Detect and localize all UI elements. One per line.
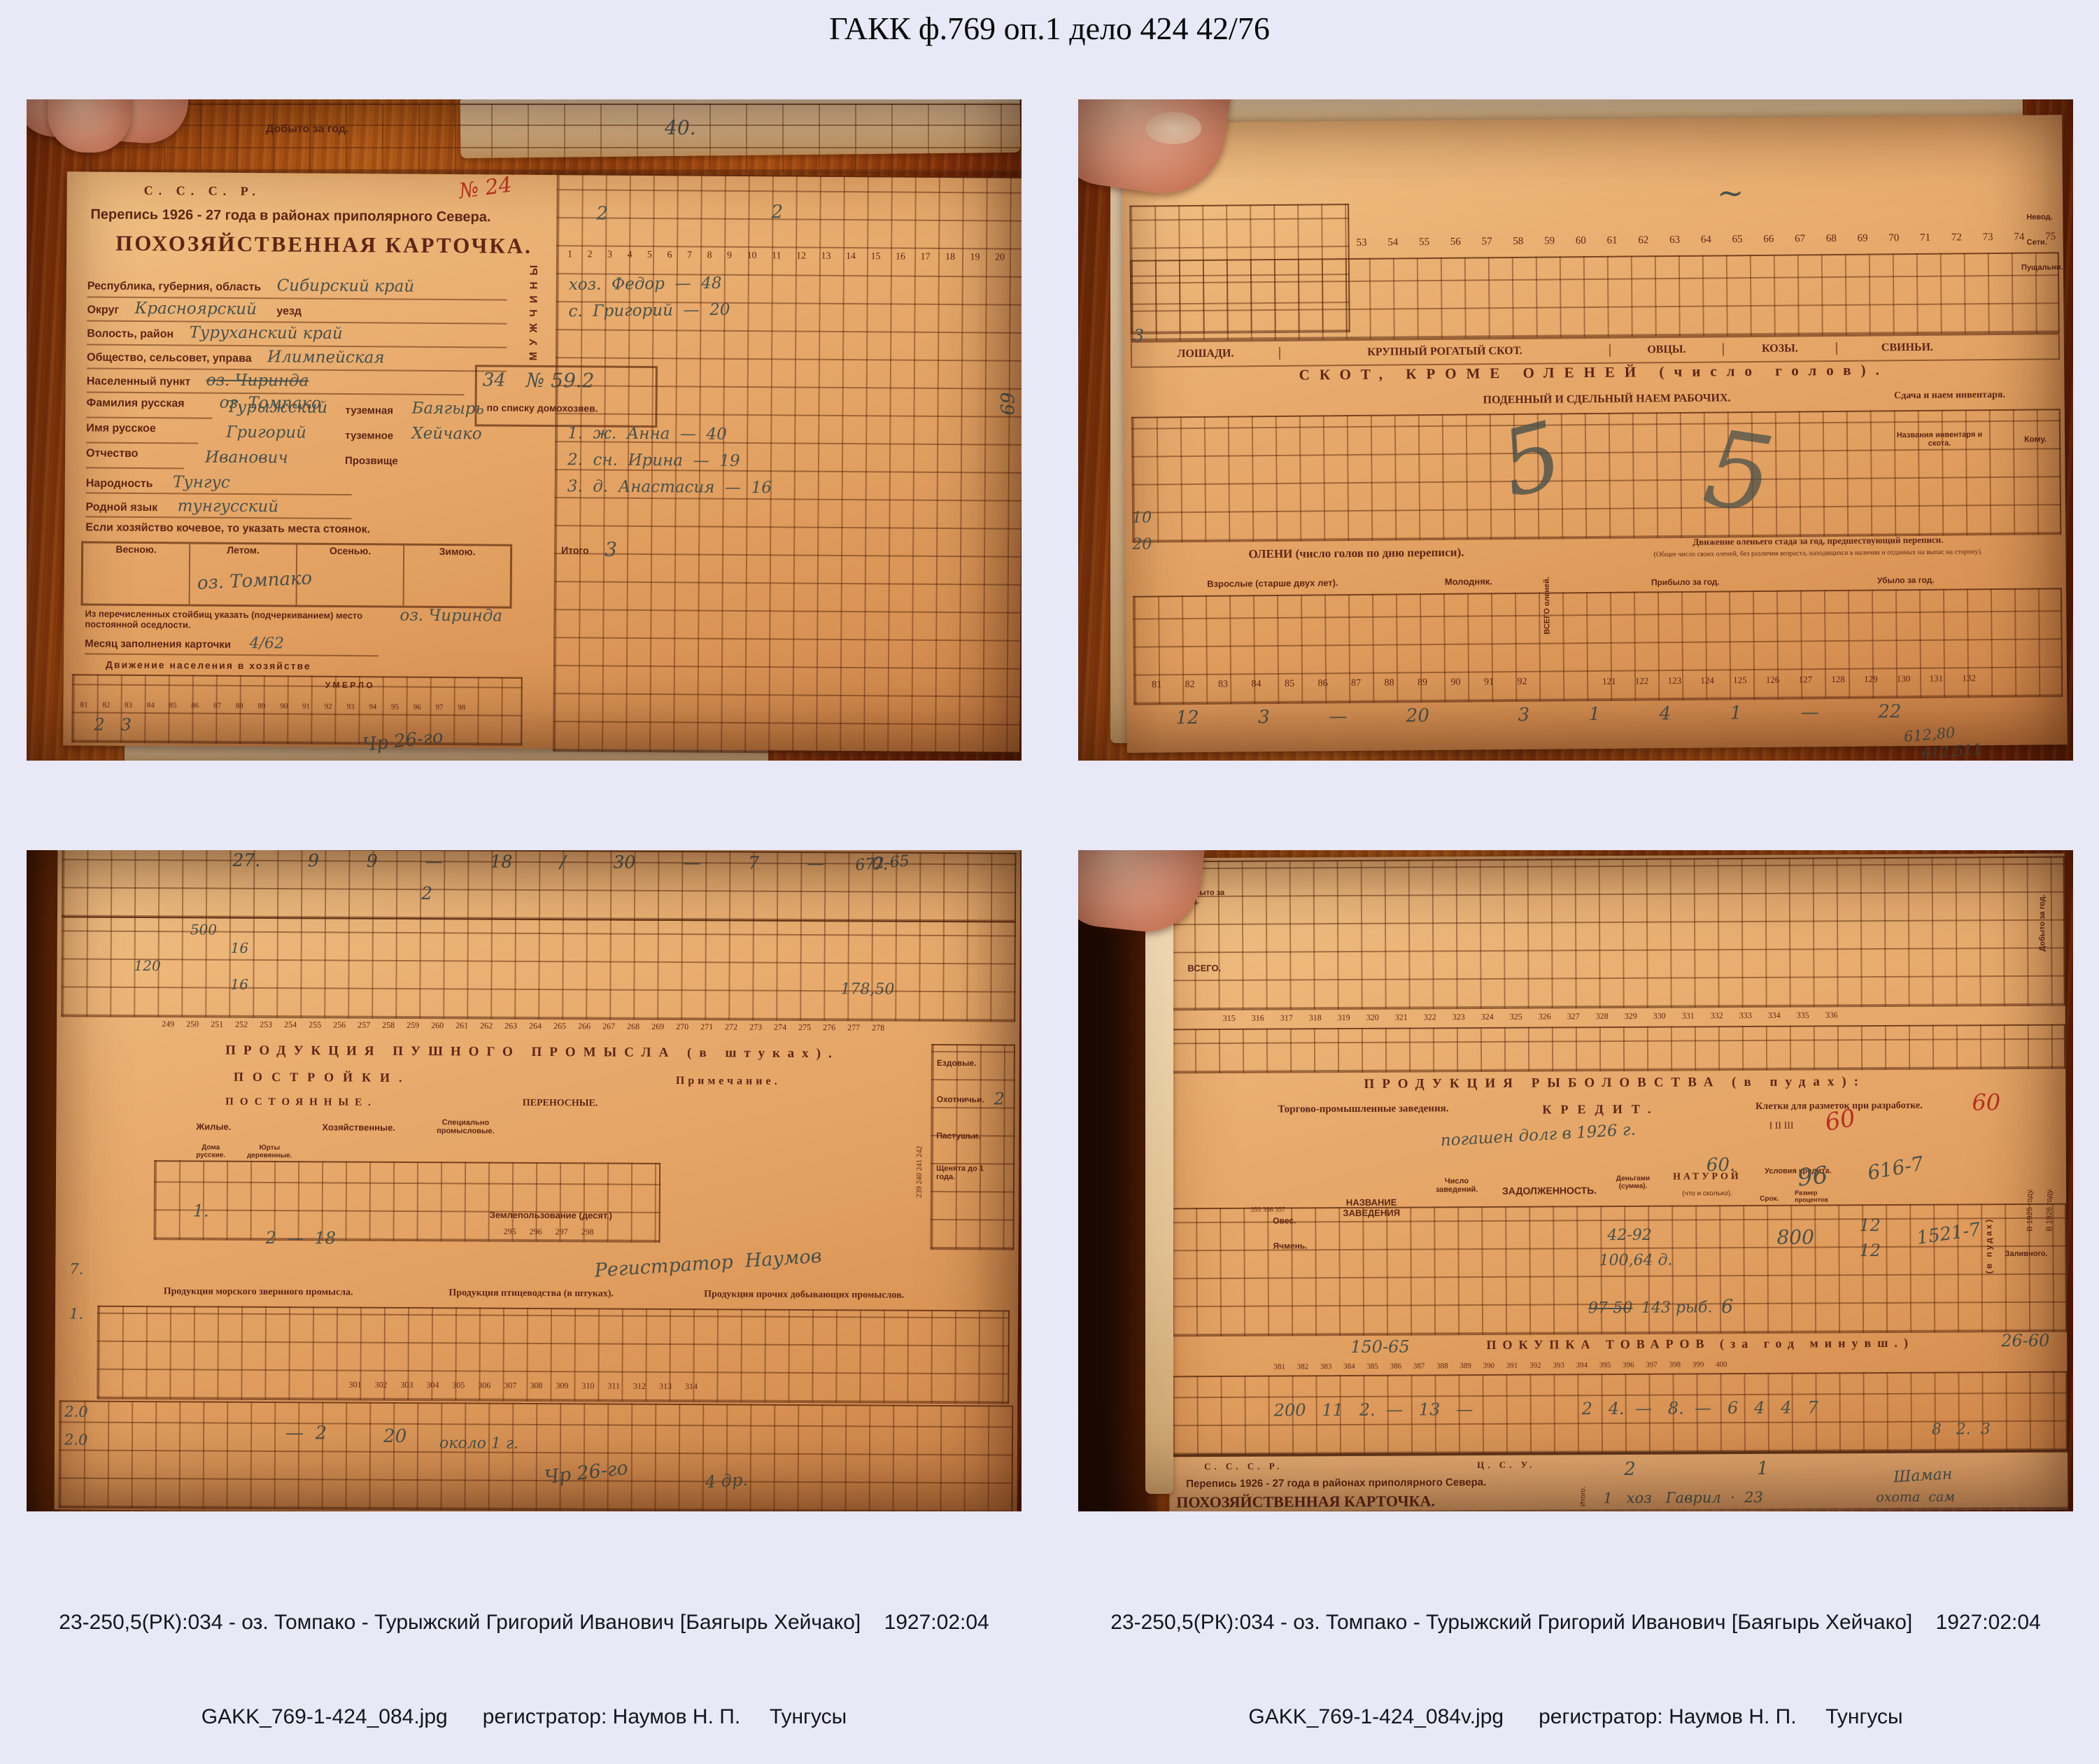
photo-083v[interactable]: ~ 53 54 55 56 57 58 59 60 61 62 63 64 65…: [1078, 99, 2073, 761]
handwritten-value: 2: [994, 1089, 1005, 1108]
total-label: Итого.: [1579, 1458, 1587, 1507]
handwritten-value: — 2: [285, 1423, 327, 1444]
column-header: Деньгами (сумма).: [1609, 1175, 1658, 1190]
column-numbers: 53 54 55 56 57 58 59 60 61 62 63 64 65 6…: [1357, 231, 2073, 249]
photo-083[interactable]: Добыто за год. 40. № 24 С. С. С. Р. Пере…: [27, 99, 1022, 761]
handwritten-value: 34: [483, 369, 506, 390]
column-numbers: 81 82 83 84 85 86 87 88 89 90 91 92 93 9…: [80, 700, 466, 712]
member-row: 1. ж. Анна — 40: [567, 424, 727, 444]
handwritten-value: 2: [1624, 1459, 1636, 1480]
handwritten-row: 2 4. — 8. — 6 4 4 7: [1582, 1397, 1818, 1418]
band-header: ПРОДУКЦИЯ ПУШНОГО ПРОМЫСЛА (в штуках).: [127, 1043, 938, 1062]
handwritten-value: оз. Чиринда: [206, 372, 309, 390]
handwritten-value: Иванович: [205, 449, 288, 467]
field-label: Округ: [87, 304, 119, 316]
doc-country: С. С. С. Р.: [144, 183, 261, 199]
fingernail: [1145, 112, 1201, 144]
column-header: Охотничьи.: [937, 1094, 984, 1104]
doc-csu: Ц. С. У.: [1477, 1460, 1535, 1471]
band-header: Торгово-промышленные заведения.: [1258, 1103, 1468, 1116]
field-label: туземная: [345, 404, 393, 416]
red-annotation: № 24: [458, 173, 514, 204]
handwritten-value: около 1 г.: [439, 1434, 518, 1453]
field-label: Народность: [86, 477, 153, 490]
handwritten-value: 2: [771, 202, 783, 223]
handwritten-value: Красноярский: [134, 299, 256, 318]
photo-084[interactable]: 27. 9 9 — 18 / 30 — 7 — 0. 2 672-65 178,…: [27, 850, 1022, 1511]
column-header: Пастушьи.: [936, 1131, 980, 1141]
handwritten-value: тунгусский: [178, 497, 279, 516]
handwritten-value: Баягырь: [411, 400, 484, 418]
field-label: уезд: [276, 305, 302, 317]
field-label: Фамилия русская: [87, 397, 185, 409]
band-header: Продукция морского звериного промысла.: [118, 1286, 398, 1299]
field-label: Невод.: [2026, 213, 2052, 221]
handwritten-value: 2.0: [64, 1431, 88, 1448]
band-header: СВИНЬИ.: [1837, 341, 1977, 355]
handwritten-value: Сибирский край: [277, 276, 415, 295]
handwritten-value: 616-7: [1866, 1152, 1925, 1185]
member-row: 3. д. Анастасия — 16: [567, 477, 772, 497]
column-header: Прибыло за год.: [1609, 577, 1762, 588]
handwritten-value: 1: [1757, 1458, 1769, 1479]
field-label: Отчество: [86, 447, 139, 460]
handwritten-value: 20: [1132, 536, 1152, 553]
column-header: Жилые.: [196, 1121, 231, 1131]
band-header: ПОСТРОЙКИ.: [141, 1069, 504, 1086]
band-header: КРУПНЫЙ РОГАТЫЙ СКОТ.: [1280, 344, 1611, 360]
handwritten-value: 10: [1132, 509, 1152, 527]
handwritten-value: оз. Чиринда: [400, 607, 502, 626]
handwritten-row: 1 хоз Гаврил · 23: [1603, 1489, 1763, 1507]
handwritten-value: Тунгус: [173, 473, 230, 492]
column-header: Юрты деревянные.: [243, 1144, 295, 1159]
column-subheader: (что и сколько).: [1662, 1190, 1753, 1198]
pencil-scribble: ~: [1717, 174, 1744, 211]
band-header: Сдача и наем инвентаря.: [1844, 389, 2054, 402]
movement-subtitle: У М Е Р Л О: [325, 680, 373, 690]
band-header: КРЕДИТ.: [1489, 1101, 1713, 1117]
column-numbers: 315 316 317 318 319 320 321 322 323 324 …: [1223, 1010, 1838, 1024]
band-header: КОЗЫ.: [1724, 342, 1837, 355]
band-header: ЛОШАДИ.: [1132, 347, 1280, 361]
red-annotation: 60: [1972, 1089, 2000, 1115]
photo-084v[interactable]: Добыто за год. ВСЕГО. Добыто за год. 315…: [1078, 850, 2073, 1511]
handwritten-value: Туруханский край: [189, 323, 342, 343]
field-label: Родной язык: [85, 501, 157, 514]
field-label: Добыто за год.: [266, 123, 348, 136]
band-header: ПРОДУКЦИЯ РЫБОЛОВСТВА (в пудах):: [1209, 1073, 2021, 1093]
band-header: Примечание.: [588, 1074, 868, 1088]
handwritten-row: 200 11 2. — 13 —: [1274, 1399, 1473, 1420]
red-annotation: 60: [1823, 1104, 1858, 1137]
photo-caption: 23-250,5(РК):034 - оз. Томпако - Турыжск…: [27, 1544, 1022, 1764]
next-card-edge: С. С. С. Р. Ц. С. У. Перепись 1926 - 27 …: [1169, 1450, 2068, 1511]
member-row: хоз. Федор — 48: [569, 274, 722, 294]
handwritten-value: 60.: [1706, 1155, 1736, 1176]
field-label: Пущальни.: [2021, 263, 2063, 272]
band-header: Продукция птицеводства (в штуках).: [412, 1287, 650, 1300]
column-numbers: 381 382 383 384 385 386 387 388 389 390 …: [1273, 1360, 1727, 1371]
movement-title: Движение населения в хозяйстве: [106, 659, 311, 672]
handwritten-note: погашен долг в 1926 г.: [1440, 1121, 1636, 1150]
pencil-scribble: 69: [996, 392, 1017, 415]
handwritten-value: 1.: [69, 1305, 83, 1322]
column-header: Летом.: [227, 544, 260, 556]
handwritten-value: 2.0: [64, 1403, 88, 1420]
handwritten-value: Григорий: [226, 423, 306, 442]
band-header: ПОКУПКА ТОВАРОВ (за год минувш.): [1434, 1335, 1966, 1353]
paper-pile-edge: [1145, 878, 1173, 1494]
caption-line2: GAKK_769-1-424_084.jpg регистратор: Наум…: [27, 1701, 1022, 1733]
band-header: ПОСТОЯННЫЕ.: [148, 1096, 455, 1109]
column-header: Молодняк.: [1420, 576, 1518, 587]
handwritten-value: Илимпейская: [267, 348, 385, 367]
handwritten-value: 2 — 18: [265, 1228, 335, 1248]
handwritten-value: 2: [421, 883, 432, 903]
handwritten-value: 20: [383, 1426, 407, 1447]
pencil-scribble: 4 др.: [705, 1469, 749, 1492]
handwritten-value: 26-60: [2001, 1331, 2049, 1350]
column-header: ЗАДОЛЖЕННОСТЬ.: [1502, 1185, 1597, 1197]
handwritten-row: 12 3 — 20 3 1 4 1 — 22: [1175, 701, 1901, 728]
column-header: Специально промысловые.: [427, 1118, 504, 1136]
caption-line1: 23-250,5(РК):034 - оз. Томпако - Турыжск…: [27, 1607, 1022, 1638]
field-label: Добыто за год.: [2038, 868, 2057, 952]
field-label: Землепользование (десят.): [490, 1210, 612, 1221]
field-label: Месяц заполнения карточки: [85, 637, 231, 650]
handwritten-row: 27. 9 9 — 18 / 30 — 7 — 0.: [232, 850, 888, 874]
field-label: Общество, сельсовет, управа: [87, 351, 252, 365]
band-header: ОЛЕНИ (число голов по дню переписи).: [1146, 544, 1566, 562]
handwritten-value: 2: [596, 204, 608, 225]
handwritten-value: 3: [605, 538, 617, 561]
field-label: Сети.: [2027, 238, 2047, 246]
photo-caption: 23-250,5(РК):034 - оз. Томпако - Турыжск…: [1078, 1544, 2073, 1764]
band-subtitle: (Общее число своих оленей, без различия …: [1587, 547, 2049, 559]
handwritten-value: 150-65: [1350, 1337, 1410, 1357]
page-title: ГАКК ф.769 оп.1 дело 424 42/76: [0, 10, 2099, 47]
doc-card-title: ПОХОЗЯЙСТВЕННАЯ КАРТОЧКА.: [1176, 1492, 1435, 1511]
doc-census-line: Перепись 1926 - 27 года в районах припол…: [90, 206, 490, 225]
handwritten-value: 1.: [193, 1201, 209, 1220]
column-header: Осенью.: [330, 545, 371, 556]
field-label: Республика, губерния, область: [87, 280, 262, 293]
column-subheader: Срок.: [1760, 1195, 1779, 1203]
registrar-signature: Регистратор Наумов: [594, 1246, 823, 1282]
column-numbers: 249 250 251 252 253 254 255 256 257 258 …: [162, 1019, 884, 1033]
column-header: Хозяйственные.: [322, 1122, 395, 1133]
column-numbers: 1 2 3 4 5 6 7 8 9 10 11 12 13 14 15 16 1…: [567, 249, 1005, 263]
column-numbers: 295 296 297 298: [504, 1227, 594, 1238]
band-header: ПЕРЕНОСНЫЕ.: [483, 1098, 637, 1110]
field-label: Имя русское: [86, 422, 156, 435]
field-label: туземное: [345, 430, 393, 442]
field-label: Названия инвентаря и скота.: [1894, 430, 1985, 448]
field-label: Волость, район: [87, 327, 174, 340]
column-numbers: 239 240 241 242: [915, 1058, 924, 1198]
member-row: с. Григорий — 20: [568, 301, 730, 320]
member-row: 2. сн. Ирина — 19: [567, 451, 740, 470]
column-header: Щенята до 1 года.: [936, 1164, 999, 1181]
column-header: Число заведений.: [1425, 1177, 1488, 1194]
column-numbers: 301 302 303 304 305 306 307 308 309 310 …: [348, 1380, 698, 1392]
field-label: Кому.: [2024, 434, 2047, 444]
handwritten-value: Турыжский: [226, 398, 327, 417]
doc-card-title: ПОХОЗЯЙСТВЕННАЯ КАРТОЧКА.: [115, 231, 532, 259]
caption-line2: GAKK_769-1-424_084v.jpg регистратор: Нау…: [1078, 1701, 2073, 1733]
column-header: Ездовые.: [937, 1058, 977, 1068]
handwritten-value: 96: [1796, 1161, 1829, 1192]
total-label: Итого: [561, 544, 589, 556]
column-header: Весною.: [115, 544, 156, 555]
handwritten-value: охота сам: [1876, 1489, 1955, 1505]
handwritten-value: 4/62: [249, 635, 284, 652]
field-label: Прозвище: [345, 455, 398, 467]
doc-country: С. С. С. Р.: [1204, 1461, 1282, 1473]
caption-line1: 23-250,5(РК):034 - оз. Томпако - Турыжск…: [1078, 1607, 2073, 1638]
handwritten-row: 8 2. 3: [1932, 1420, 1991, 1438]
field-label: Населенный пункт: [87, 375, 191, 388]
band-header: ОВЦЫ.: [1611, 343, 1724, 356]
handwritten-value: 7.: [69, 1261, 83, 1278]
settle-label: Из перечисленных стойбищ указать (подчер…: [85, 608, 393, 631]
cells-columns: I II III: [1769, 1121, 1794, 1132]
column-header: Взрослые (старше двух лет).: [1161, 577, 1385, 590]
handwritten-value: 40.: [665, 116, 696, 139]
men-section-label: МУЖЧИНЫ: [528, 259, 540, 361]
field-label: ВСЕГО.: [1187, 963, 1221, 973]
column-header: Убыло за год.: [1790, 574, 2021, 586]
doc-census-line: Перепись 1926 - 27 года в районах припол…: [1186, 1476, 1486, 1490]
column-header: Дома русские.: [186, 1143, 235, 1159]
handwritten-value: 3: [1133, 326, 1145, 346]
nomad-label: Если хозяйство кочевое, то указать места…: [85, 521, 370, 536]
handwritten-value: Шаман: [1893, 1465, 1953, 1486]
band-header: ПОДЕННЫЙ И СДЕЛЬНЫЙ НАЕМ РАБОЧИХ.: [1453, 392, 1761, 407]
handwritten-value: Хейчако: [411, 425, 482, 444]
handwritten-value: 2 3: [94, 715, 132, 735]
column-header: Зимою.: [439, 546, 476, 557]
band-header: Продукция прочих добывающих промыслов.: [664, 1289, 944, 1301]
